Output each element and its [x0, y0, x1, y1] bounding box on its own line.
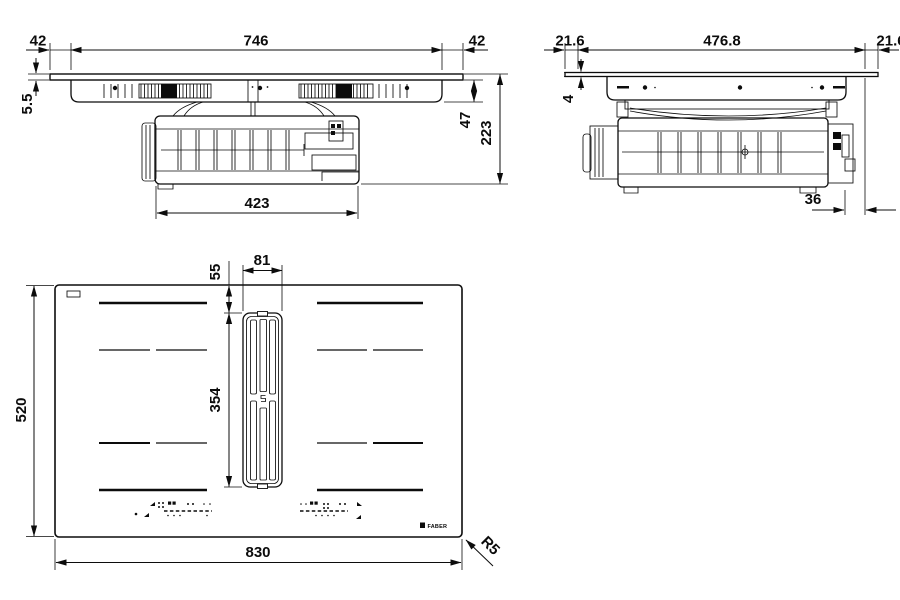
dim-side-rear-offset-label: 36 — [805, 191, 822, 208]
front-view-filter-unit — [142, 116, 359, 189]
front-view: 42 746 42 5.5 47 223 423 — [19, 33, 508, 220]
dim-side-overhang-left-label: 21.6 — [555, 33, 584, 50]
front-view-body — [71, 80, 442, 102]
brand-label: FABER — [428, 524, 448, 530]
top-view-brand: FABER — [420, 523, 447, 531]
side-view-body — [607, 77, 846, 121]
technical-drawing: 42 746 42 5.5 47 223 423 — [0, 0, 900, 600]
dim-front-total-height-label: 223 — [478, 120, 495, 145]
side-view-glass — [565, 73, 878, 77]
side-view: 21.6 476.8 21.6 4 36 — [544, 33, 900, 216]
brand-logo-icon — [420, 523, 425, 529]
dim-top-grille-offset-label: 55 — [207, 264, 224, 281]
dim-front-glass-thickness-label: 5.5 — [19, 94, 36, 115]
dim-front-overhang-right-label: 42 — [469, 33, 486, 50]
dim-top-hob-depth-label: 520 — [13, 397, 30, 422]
top-view: FABER 520 830 R5 55 81 354 — [13, 252, 503, 570]
side-view-filter-unit — [583, 118, 855, 193]
front-view-screws — [113, 86, 409, 90]
dim-front-unit-width-label: 423 — [244, 195, 269, 212]
dim-front-glass-width-label: 746 — [243, 33, 268, 50]
dim-top-hob-width-label: 830 — [245, 544, 270, 561]
dim-side-overhang-right-label: 21.6 — [876, 33, 900, 50]
top-view-controls-left — [135, 502, 212, 518]
grille-logo-mark — [261, 396, 266, 402]
dim-top-grille-width-label: 81 — [254, 252, 271, 269]
front-view-dimensions: 42 746 42 5.5 47 223 423 — [19, 33, 508, 220]
dim-side-glass-depth-label: 476.8 — [703, 33, 741, 50]
dim-front-recess-height-label: 47 — [457, 112, 474, 129]
dim-front-overhang-left-label: 42 — [30, 33, 47, 50]
front-view-glass — [50, 74, 463, 80]
top-view-rating-label — [67, 291, 80, 297]
top-view-extractor-grille — [243, 312, 282, 489]
top-view-dimensions: 520 830 R5 55 81 354 — [13, 252, 503, 570]
top-view-controls-right — [300, 502, 362, 520]
dim-side-glass-height-label: 4 — [560, 94, 577, 103]
dim-top-grille-length-label: 354 — [207, 387, 224, 413]
front-view-vents — [104, 84, 407, 98]
top-view-hob-outline — [55, 285, 462, 537]
